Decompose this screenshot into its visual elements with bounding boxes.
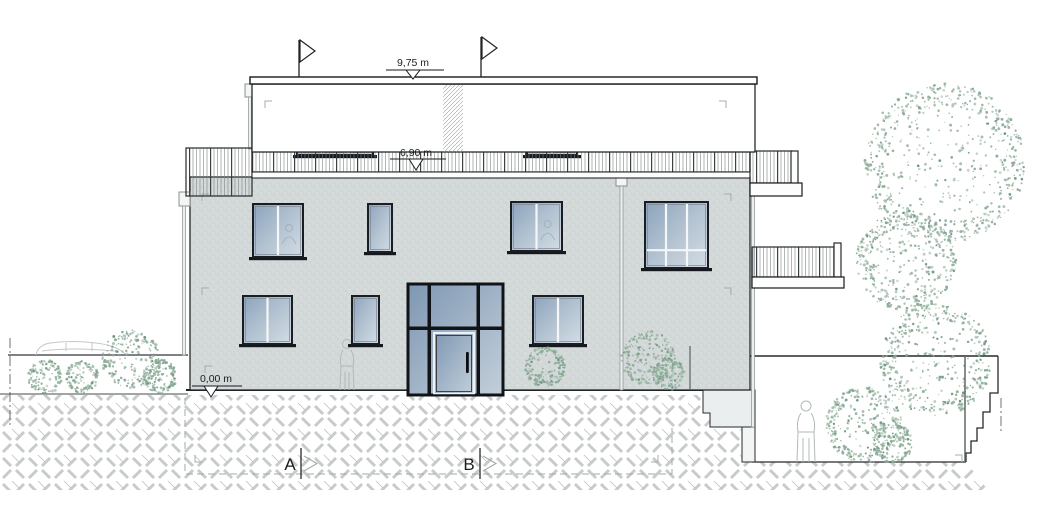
tree-stipple [873, 423, 913, 463]
window [348, 296, 383, 347]
foundation-stub [742, 427, 755, 462]
tree-stipple [27, 359, 62, 394]
balcony-slab [752, 277, 844, 288]
tree-stipple [856, 212, 957, 312]
tree-stipple [826, 387, 903, 464]
window [641, 202, 712, 271]
building [179, 37, 844, 427]
penthouse-wall-hatch [443, 84, 463, 152]
entrance-door [408, 284, 503, 395]
earth-hatch-right [742, 462, 988, 490]
flag-icon [299, 40, 315, 77]
terrace-slab [252, 172, 750, 178]
penthouse [250, 77, 757, 152]
dim-roof-label: 9,75 m [397, 57, 429, 69]
earth-hatch-main [0, 395, 742, 490]
elevation-drawing: 9,75 m 6,90 m 0,00 m A B [0, 0, 1052, 516]
flag-icon [481, 37, 497, 77]
balcony [752, 243, 844, 288]
tree-stipple [864, 82, 1025, 243]
window [364, 204, 396, 255]
window [529, 296, 587, 347]
window [239, 296, 296, 347]
tree-stipple [142, 359, 176, 394]
roof-slab [250, 77, 757, 84]
tree-stipple [879, 303, 990, 416]
foundation-wall [703, 390, 755, 427]
window [249, 204, 307, 260]
tree-stipple [65, 360, 98, 393]
axis-b-label: B [463, 455, 474, 474]
axis-a-label: A [284, 455, 296, 474]
corner-mark [955, 455, 962, 462]
elevation-marker-roof: 9,75 m [386, 57, 444, 79]
person-figure-right [797, 401, 815, 462]
tree-stipple [101, 329, 160, 389]
architectural-elevation-page: 9,75 m 6,90 m 0,00 m A B [0, 0, 1052, 516]
door-handle [466, 352, 469, 373]
dim-ground-label: 0,00 m [200, 373, 232, 385]
window [507, 202, 566, 254]
dim-terrace-label: 6,90 m [400, 147, 432, 159]
garden-stairs [966, 356, 998, 462]
